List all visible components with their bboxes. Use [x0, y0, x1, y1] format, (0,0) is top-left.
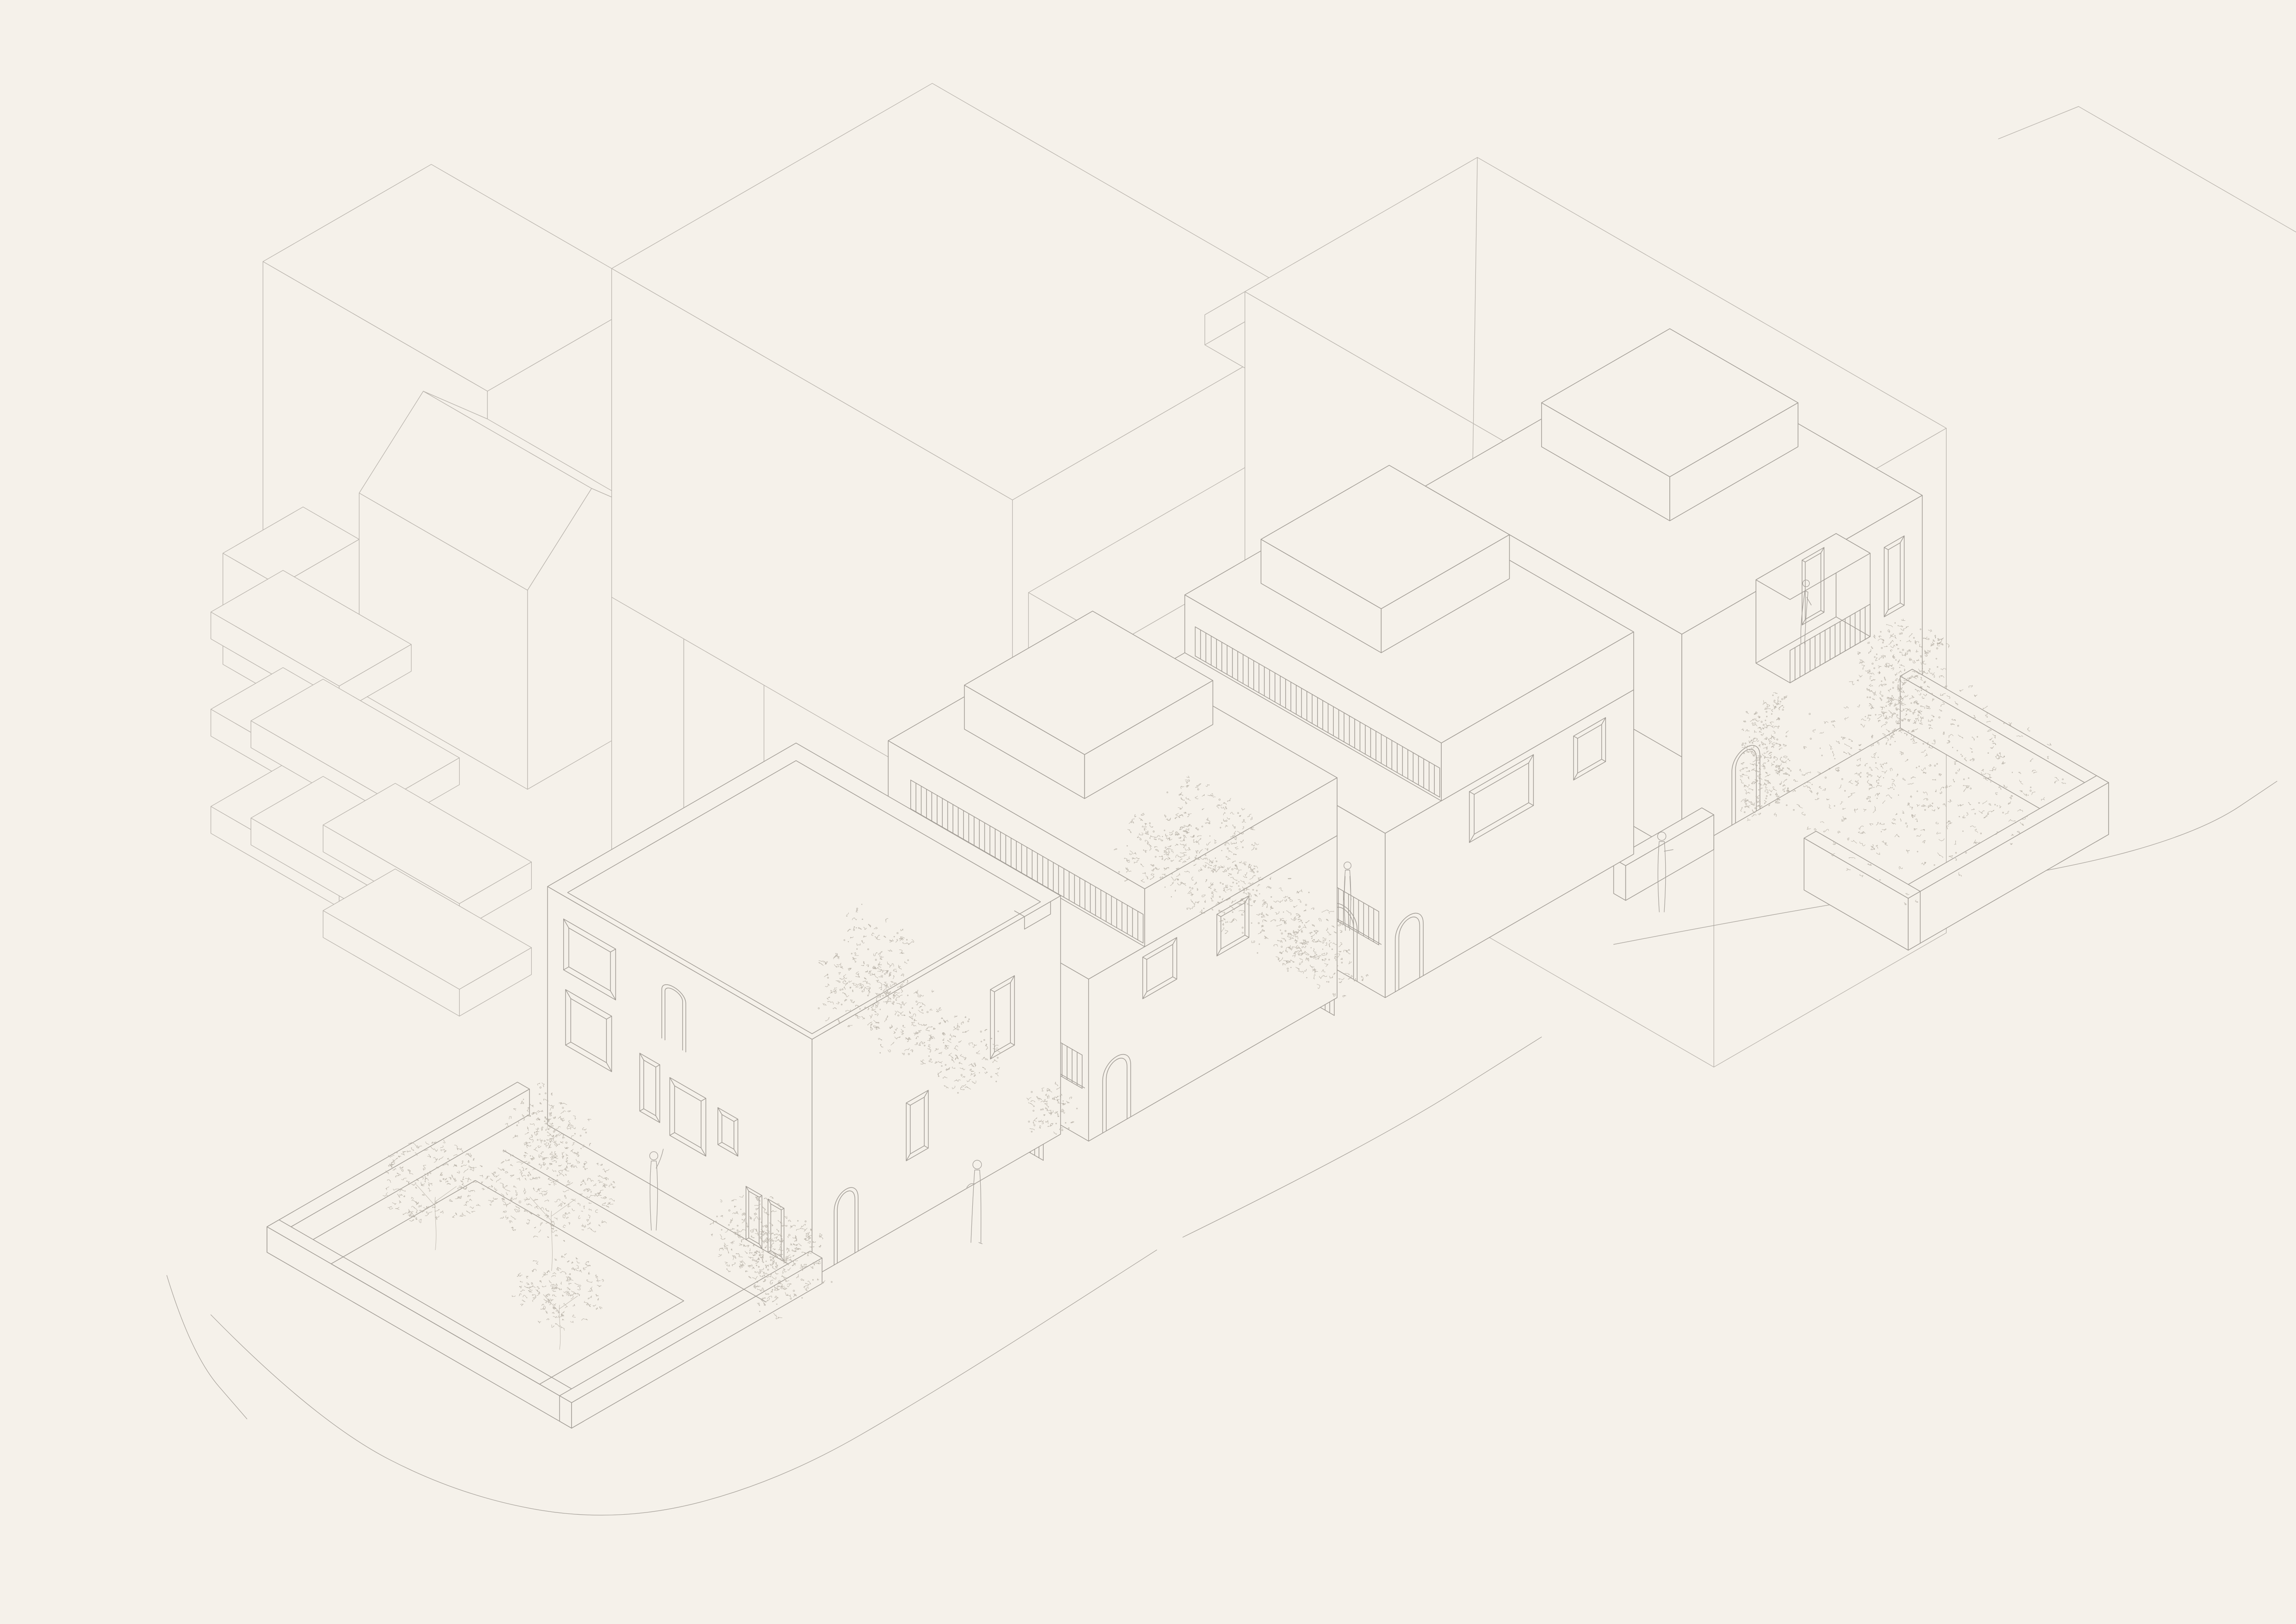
axonometric-line-drawing: [0, 0, 2296, 1624]
drawing-canvas: [0, 0, 2296, 1624]
